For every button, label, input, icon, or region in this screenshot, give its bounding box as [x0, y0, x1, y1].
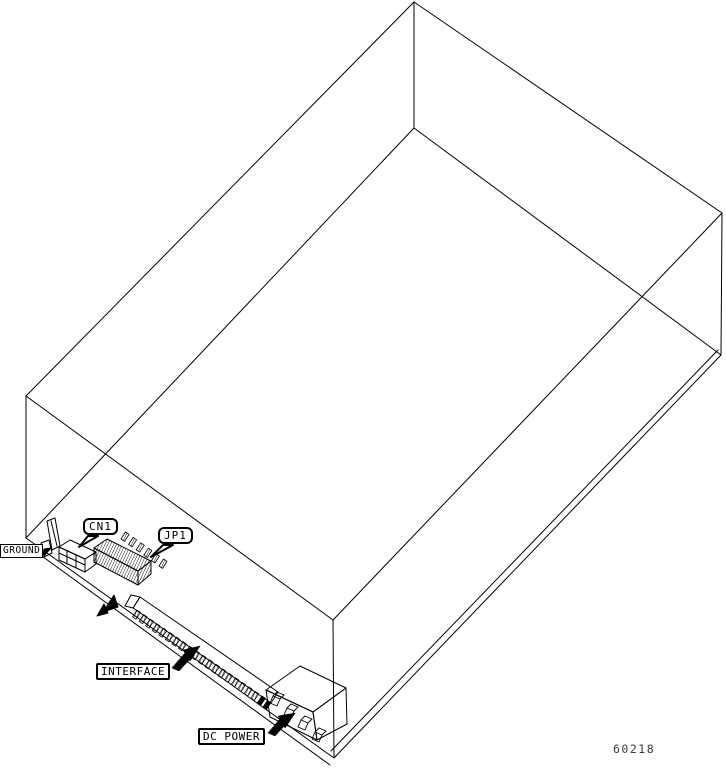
dc-power-label: DC POWER: [198, 728, 265, 745]
cn1-connector: [59, 540, 96, 572]
isometric-drawing: [0, 0, 726, 770]
cn1-label: CN1: [83, 518, 118, 535]
chassis-wireframe: [26, 2, 722, 765]
jp1-callout-tail: [151, 545, 173, 557]
interface-connector: [125, 595, 278, 710]
cn1-callout-tail: [79, 536, 98, 547]
jp1-label: JP1: [158, 527, 193, 544]
figure-number: 60218: [613, 744, 655, 756]
ground-label: GROUND: [0, 544, 43, 558]
interface-label: INTERFACE: [96, 663, 170, 680]
connector-location-diagram: GROUND CN1 JP1 INTERFACE DC POWER 60218: [0, 0, 726, 770]
